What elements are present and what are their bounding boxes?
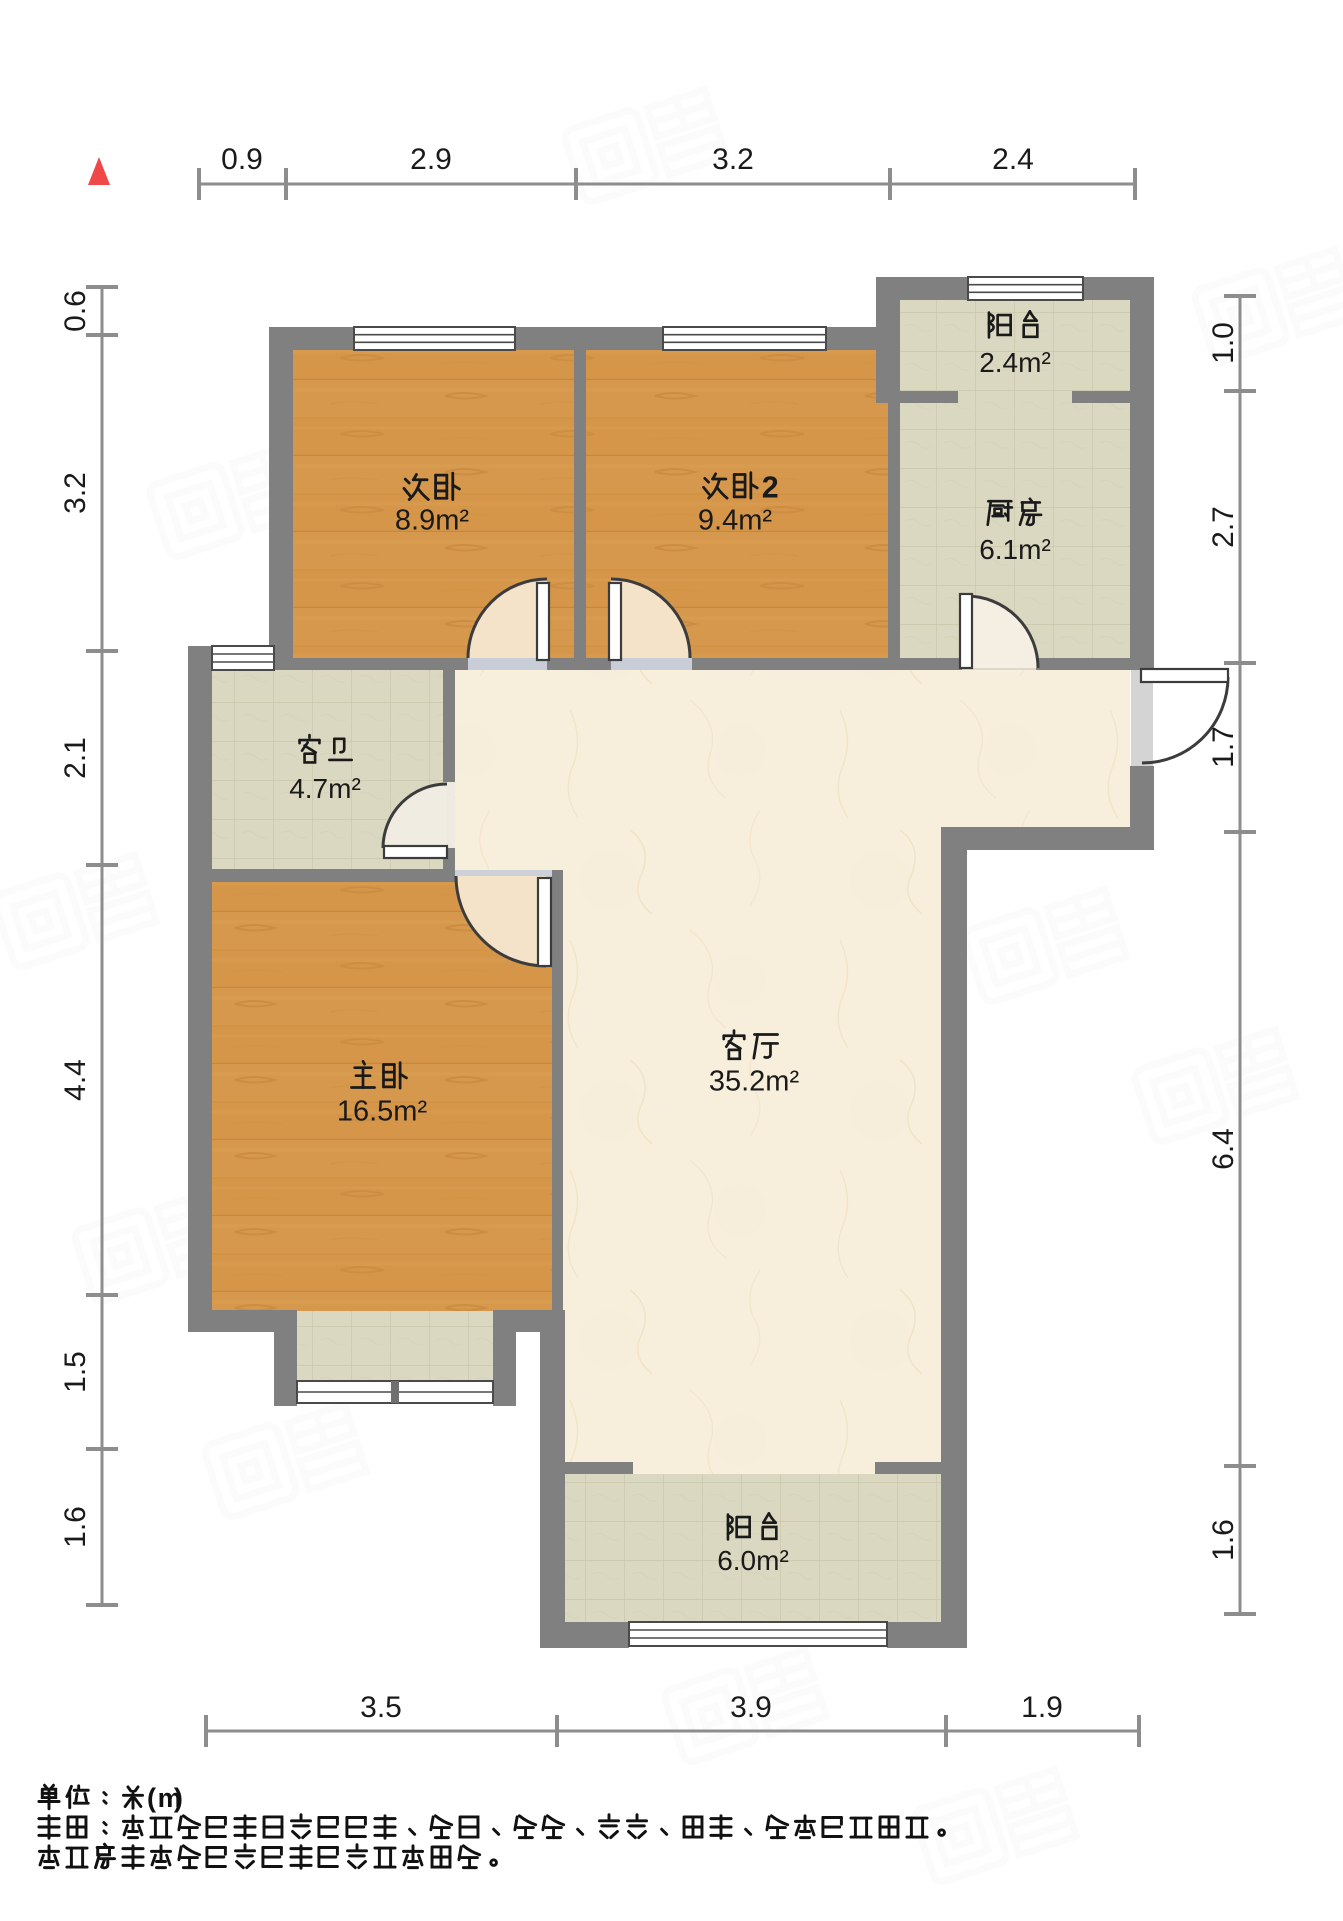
- svg-text:35.2m²: 35.2m²: [709, 1065, 800, 1097]
- svg-text:3.2: 3.2: [712, 143, 754, 176]
- svg-text:3.9: 3.9: [730, 1691, 772, 1724]
- svg-text:2.4m²: 2.4m²: [979, 347, 1051, 378]
- svg-text:9.4m²: 9.4m²: [698, 504, 772, 536]
- svg-text:0.9: 0.9: [221, 143, 263, 176]
- svg-text:8.9m²: 8.9m²: [395, 504, 469, 536]
- svg-text:2.4: 2.4: [992, 143, 1034, 176]
- svg-text:): ): [174, 1782, 183, 1813]
- svg-text:2: 2: [762, 471, 779, 505]
- svg-text:2.7: 2.7: [1207, 506, 1240, 548]
- svg-text:3.2: 3.2: [59, 472, 92, 514]
- svg-text:1.5: 1.5: [59, 1351, 92, 1393]
- svg-text:(: (: [147, 1782, 157, 1813]
- svg-text:1.7: 1.7: [1207, 726, 1240, 768]
- svg-text:1.6: 1.6: [1207, 1519, 1240, 1561]
- svg-text:1.9: 1.9: [1021, 1691, 1063, 1724]
- svg-text:4.7m²: 4.7m²: [289, 773, 361, 804]
- svg-text:6.4: 6.4: [1207, 1128, 1240, 1170]
- svg-text:3.5: 3.5: [360, 1691, 402, 1724]
- svg-text:0.6: 0.6: [59, 290, 92, 332]
- svg-text:4.4: 4.4: [59, 1059, 92, 1101]
- svg-text:2.9: 2.9: [410, 143, 452, 176]
- svg-text:6.1m²: 6.1m²: [979, 534, 1051, 565]
- svg-text:1.0: 1.0: [1207, 322, 1240, 364]
- svg-text:6.0m²: 6.0m²: [717, 1545, 789, 1576]
- svg-text:16.5m²: 16.5m²: [337, 1095, 428, 1127]
- svg-text:2.1: 2.1: [59, 737, 92, 779]
- svg-text:1.6: 1.6: [59, 1506, 92, 1548]
